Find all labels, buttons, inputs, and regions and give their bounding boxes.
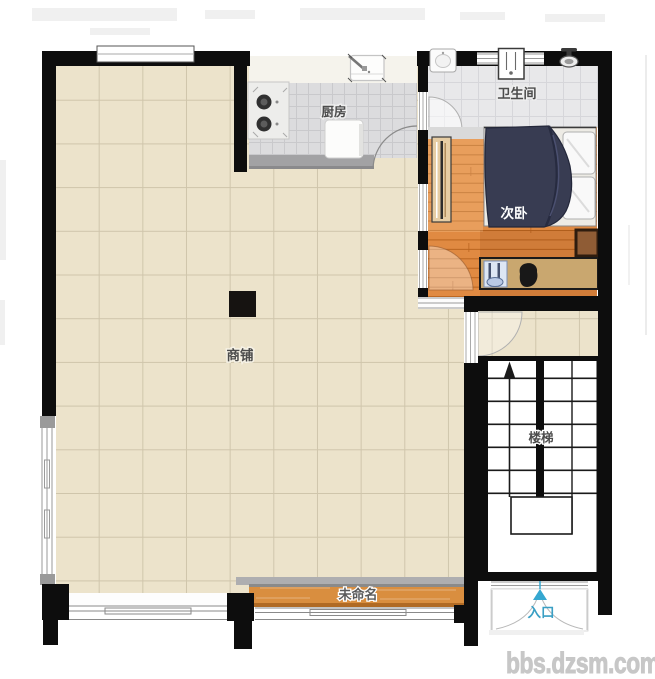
- svg-text:次卧: 次卧: [501, 205, 529, 221]
- svg-text:未命名: 未命名: [337, 587, 377, 602]
- svg-text:楼梯: 楼梯: [528, 430, 554, 445]
- svg-text:入口: 入口: [528, 605, 555, 620]
- svg-text:商铺: 商铺: [227, 347, 254, 363]
- svg-text:bbs.dzsm.com: bbs.dzsm.com: [506, 646, 655, 679]
- svg-text:厨房: 厨房: [321, 104, 346, 119]
- svg-text:卫生间: 卫生间: [497, 86, 536, 101]
